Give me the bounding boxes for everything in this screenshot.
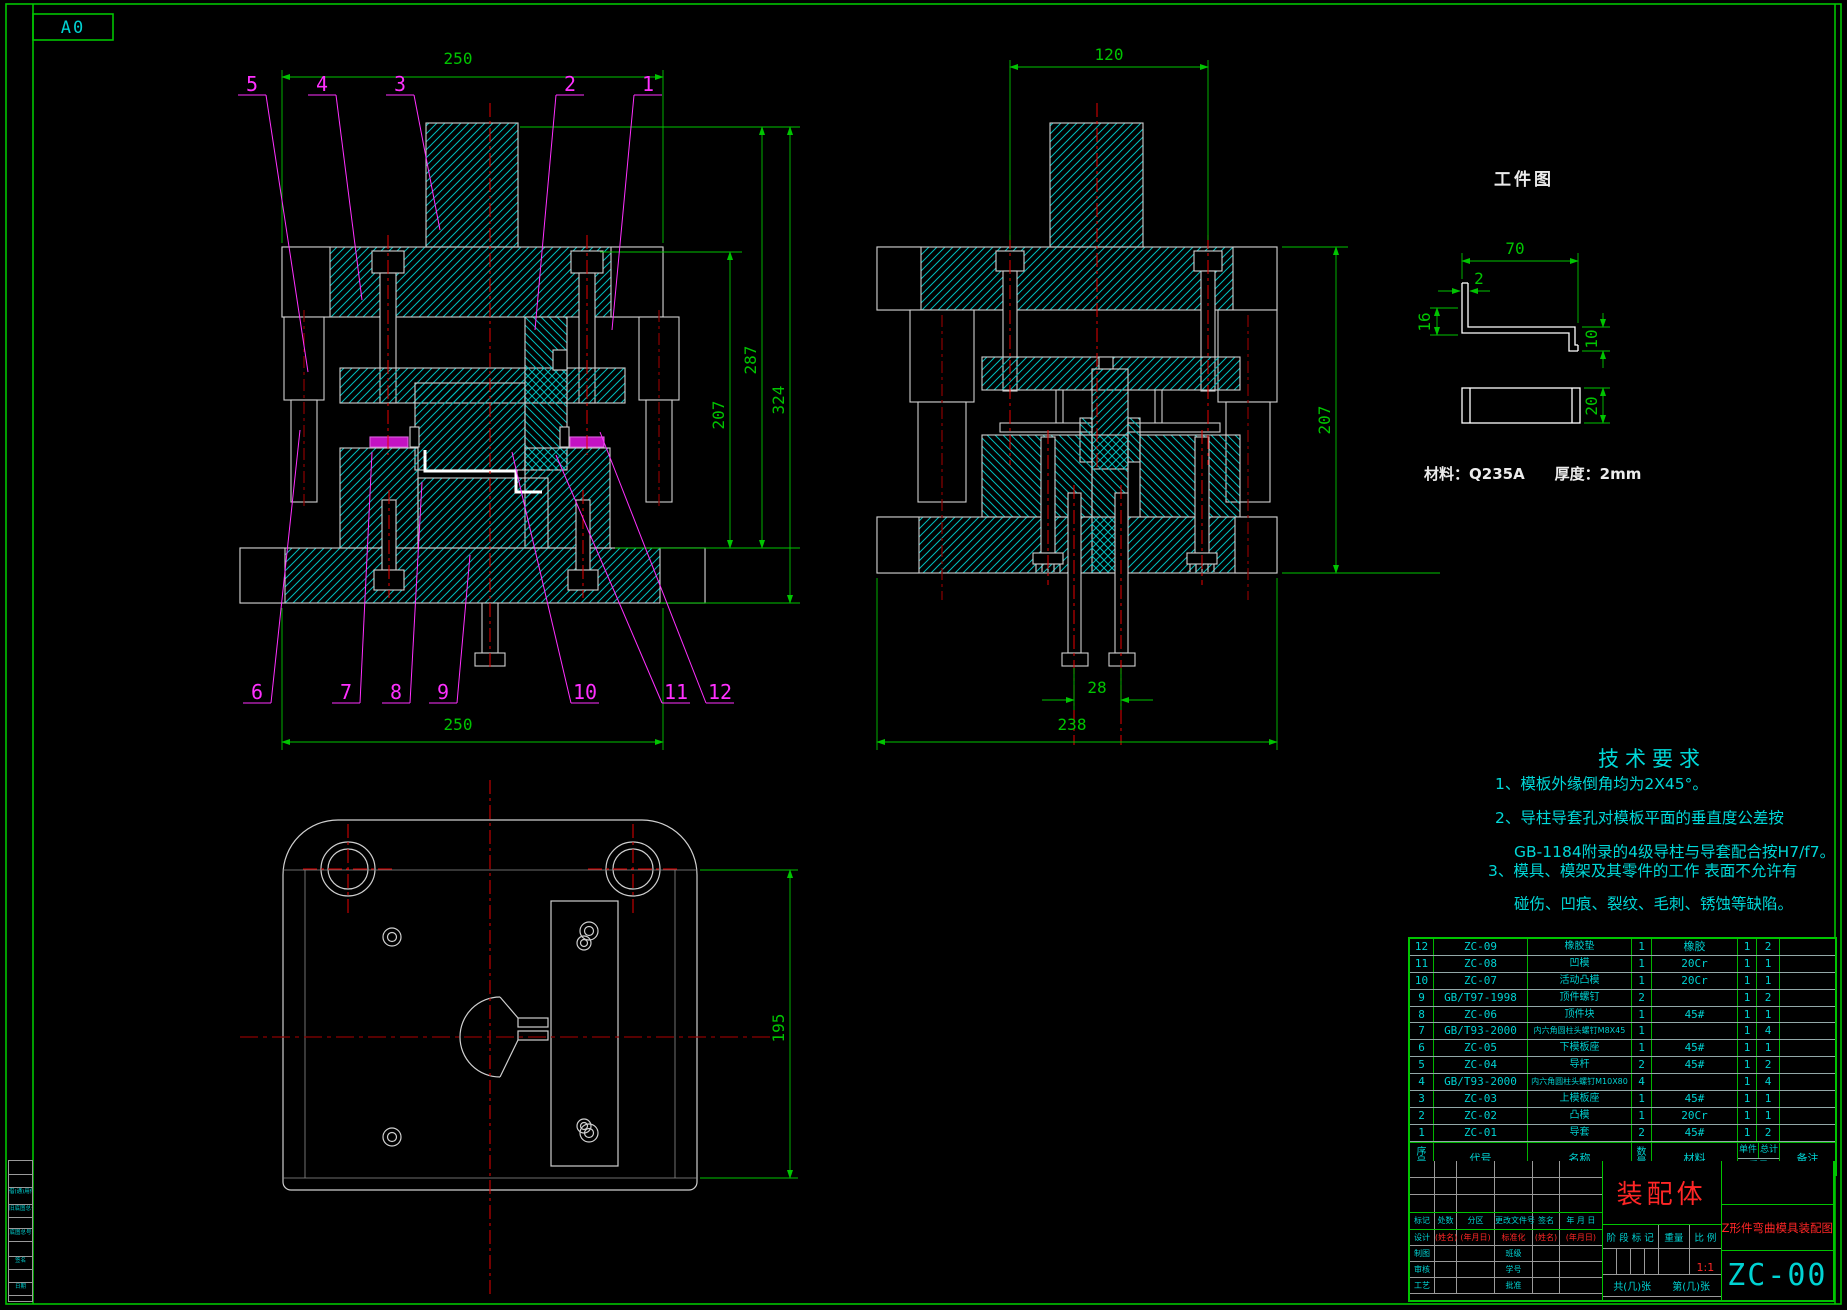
svg-text:9: 9 <box>437 680 449 704</box>
bom-cell-note <box>1780 1023 1835 1039</box>
strip-label: 旧底图总号 <box>8 1204 33 1217</box>
dim-side-top-width: 120 <box>1095 45 1124 64</box>
bom-cell-seq: 9 <box>1410 990 1434 1006</box>
tech-req-title: 技术要求 <box>1598 743 1706 773</box>
bom-cell-code: GB/T93-2000 <box>1434 1074 1528 1090</box>
bom-cell-total: 1 <box>1757 973 1780 989</box>
centerlines-plan <box>303 780 678 1296</box>
strip-label: 借(通)用件登记 <box>8 1187 33 1204</box>
bom-cell-note <box>1780 1074 1835 1090</box>
bom-cell-code: ZC-04 <box>1434 1057 1528 1073</box>
left-margin-strip: 借(通)用件登记 旧底图总号 底图总号 签名 日期 <box>8 1160 33 1302</box>
bom-cell-code: ZC-05 <box>1434 1040 1528 1056</box>
title-block: 标记 处数 分区 更改文件号 签名 年 月 日 设计 (姓名) (年月日) 标准… <box>1408 1161 1835 1302</box>
dim-side-bottom-width: 238 <box>1058 715 1087 734</box>
sig-row-check: 审核 学号 <box>1410 1262 1602 1278</box>
bom-cell-total: 2 <box>1757 939 1780 955</box>
stage-cells: 1:1 <box>1603 1249 1721 1275</box>
bom-row: 4 GB/T93-2000 内六角圆柱头螺钉M10X80 4 1 4 <box>1410 1074 1835 1091</box>
bom-cell-note <box>1780 1007 1835 1023</box>
bom-cell-seq: 7 <box>1410 1023 1434 1039</box>
bom-cell-material: 20Cr <box>1652 956 1738 972</box>
bom-cell-name: 导套 <box>1528 1125 1632 1141</box>
bom-cell-unit: 1 <box>1738 1125 1757 1141</box>
workpiece-material-note: 材料：Q235A 厚度：2mm <box>1424 463 1641 484</box>
bom-cell-total: 4 <box>1757 1023 1780 1039</box>
bom-cell-material: 45# <box>1652 1007 1738 1023</box>
dim-front-height-outer: 324 <box>769 386 788 415</box>
dim-wp-thickness: 2 <box>1474 269 1484 288</box>
svg-text:3: 3 <box>394 72 406 96</box>
strip-label: 签名 <box>8 1256 33 1269</box>
bom-cell-unit: 1 <box>1738 1023 1757 1039</box>
bom-cell-material: 45# <box>1652 1040 1738 1056</box>
bom-cell-seq: 2 <box>1410 1108 1434 1124</box>
bom-cell-unit: 1 <box>1738 939 1757 955</box>
bom-cell-seq: 11 <box>1410 956 1434 972</box>
svg-text:11: 11 <box>664 680 688 704</box>
bom-row: 1 ZC-01 导套 2 45# 1 2 <box>1410 1125 1835 1142</box>
bom-cell-unit: 1 <box>1738 1108 1757 1124</box>
dim-side-bolt-spacing: 28 <box>1087 678 1106 697</box>
workpiece-detail: 70 2 16 10 20 <box>1415 239 1610 423</box>
side-view: 120 207 28 238 <box>877 45 1440 750</box>
bom-row: 7 GB/T93-2000 内六角圆柱头螺钉M8X45 1 1 4 <box>1410 1023 1835 1040</box>
front-view: 250 207 287 324 250 5 4 3 2 1 6 7 <box>238 49 800 750</box>
bom-cell-unit: 1 <box>1738 1091 1757 1107</box>
bom-cell-total: 1 <box>1757 1040 1780 1056</box>
bom-cell-seq: 8 <box>1410 1007 1434 1023</box>
bom-cell-qty: 1 <box>1632 1023 1652 1039</box>
plan-view: 195 <box>240 780 798 1296</box>
svg-text:12: 12 <box>708 680 732 704</box>
bom-cell-unit: 1 <box>1738 1057 1757 1073</box>
bom-cell-unit: 1 <box>1738 973 1757 989</box>
bom-cell-unit: 1 <box>1738 1074 1757 1090</box>
bom-header-total: 总计 <box>1759 1143 1779 1158</box>
sheets-row: 共(几)张 第(几)张 <box>1603 1275 1721 1297</box>
bom-cell-name: 橡胶垫 <box>1528 939 1632 955</box>
bom-cell-code: ZC-03 <box>1434 1091 1528 1107</box>
bom-cell-qty: 2 <box>1632 990 1652 1006</box>
bom-cell-code: ZC-01 <box>1434 1125 1528 1141</box>
bom-row: 12 ZC-09 橡胶垫 1 橡胶 1 2 <box>1410 939 1835 956</box>
bom-table: 12 ZC-09 橡胶垫 1 橡胶 1 2 11 ZC-08 凹模 1 20Cr… <box>1408 937 1837 1176</box>
bom-cell-qty: 1 <box>1632 1007 1652 1023</box>
bom-cell-name: 活动凸模 <box>1528 973 1632 989</box>
bom-row: 5 ZC-04 导杆 2 45# 1 2 <box>1410 1057 1835 1074</box>
bom-cell-total: 2 <box>1757 1057 1780 1073</box>
bom-cell-unit: 1 <box>1738 1007 1757 1023</box>
dim-front-bottom-width: 250 <box>444 715 473 734</box>
bom-cell-note <box>1780 956 1835 972</box>
bom-cell-seq: 10 <box>1410 973 1434 989</box>
sig-row-draft: 制图 班级 <box>1410 1246 1602 1262</box>
bom-cell-name: 凸模 <box>1528 1108 1632 1124</box>
bom-row: 11 ZC-08 凹模 1 20Cr 1 1 <box>1410 956 1835 973</box>
bom-cell-material: 45# <box>1652 1091 1738 1107</box>
bom-cell-seq: 12 <box>1410 939 1434 955</box>
bom-cell-note <box>1780 939 1835 955</box>
svg-text:10: 10 <box>573 680 597 704</box>
bom-cell-total: 2 <box>1757 1125 1780 1141</box>
bom-cell-material: 橡胶 <box>1652 939 1738 955</box>
bom-cell-code: GB/T97-1998 <box>1434 990 1528 1006</box>
bom-header-unit: 单件 <box>1738 1143 1759 1158</box>
dim-wp-flange-left: 16 <box>1415 312 1434 331</box>
dim-wp-flange-right: 10 <box>1582 329 1601 348</box>
bom-cell-qty: 1 <box>1632 1040 1652 1056</box>
svg-text:8: 8 <box>390 680 402 704</box>
bom-cell-note <box>1780 973 1835 989</box>
cad-sheet: A0 <box>0 0 1847 1310</box>
bom-cell-note <box>1780 990 1835 1006</box>
bom-cell-material: 20Cr <box>1652 1108 1738 1124</box>
bom-cell-unit: 1 <box>1738 956 1757 972</box>
bom-row: 2 ZC-02 凸模 1 20Cr 1 1 <box>1410 1108 1835 1125</box>
bom-cell-code: ZC-08 <box>1434 956 1528 972</box>
bom-cell-total: 1 <box>1757 1091 1780 1107</box>
strip-label: 日期 <box>8 1282 33 1295</box>
bom-cell-material <box>1652 1023 1738 1039</box>
sheet-size-label: A0 <box>61 18 85 38</box>
bom-cell-name: 内六角圆柱头螺钉M8X45 <box>1528 1023 1632 1039</box>
dim-wp-blank-height: 20 <box>1582 396 1601 415</box>
bom-cell-unit: 1 <box>1738 990 1757 1006</box>
dim-front-height-mid: 287 <box>741 346 760 375</box>
title-block-right: Z形件弯曲模具装配图 ZC-00 <box>1722 1161 1833 1300</box>
drawing-number: ZC-00 <box>1722 1251 1833 1300</box>
bom-cell-seq: 3 <box>1410 1091 1434 1107</box>
bom-cell-material: 45# <box>1652 1057 1738 1073</box>
bom-cell-total: 2 <box>1757 990 1780 1006</box>
bom-cell-code: ZC-07 <box>1434 973 1528 989</box>
bom-cell-material: 45# <box>1652 1125 1738 1141</box>
bom-cell-qty: 2 <box>1632 1125 1652 1141</box>
dim-plan-height: 195 <box>769 1014 788 1043</box>
dim-wp-width: 70 <box>1505 239 1524 258</box>
bom-row: 3 ZC-03 上模板座 1 45# 1 1 <box>1410 1091 1835 1108</box>
bom-cell-note <box>1780 1040 1835 1056</box>
bom-row: 8 ZC-06 顶件块 1 45# 1 1 <box>1410 1007 1835 1024</box>
bom-cell-qty: 1 <box>1632 956 1652 972</box>
stage-row: 阶 段 标 记 重量 比 例 <box>1603 1225 1721 1249</box>
svg-text:2: 2 <box>564 72 576 96</box>
tech-req-line: 碰伤、凹痕、裂纹、毛刺、锈蚀等缺陷。 <box>1514 892 1793 914</box>
bom-cell-qty: 4 <box>1632 1074 1652 1090</box>
bom-cell-note <box>1780 1125 1835 1141</box>
bom-cell-seq: 5 <box>1410 1057 1434 1073</box>
bom-cell-name: 凹模 <box>1528 956 1632 972</box>
bom-cell-name: 顶件螺钉 <box>1528 990 1632 1006</box>
tech-req-line: 2、导柱导套孔对模板平面的垂直度公差按 <box>1495 806 1784 828</box>
bom-cell-seq: 6 <box>1410 1040 1434 1056</box>
bom-cell-seq: 4 <box>1410 1074 1434 1090</box>
svg-text:5: 5 <box>246 72 258 96</box>
bom-cell-name: 顶件块 <box>1528 1007 1632 1023</box>
bom-cell-total: 4 <box>1757 1074 1780 1090</box>
sig-row-design: 设计 (姓名) (年月日) 标准化 (姓名) (年月日) <box>1410 1230 1602 1246</box>
bom-cell-qty: 1 <box>1632 973 1652 989</box>
bom-cell-seq: 1 <box>1410 1125 1434 1141</box>
tech-req-line: 3、模具、模架及其零件的工作 表面不允许有 <box>1488 859 1797 881</box>
bom-cell-name: 内六角圆柱头螺钉M10X80 <box>1528 1074 1632 1090</box>
bom-cell-qty: 1 <box>1632 1108 1652 1124</box>
svg-text:1: 1 <box>642 72 654 96</box>
strip-label: 底图总号 <box>8 1228 33 1241</box>
bom-cell-code: ZC-02 <box>1434 1108 1528 1124</box>
scale-value: 1:1 <box>1690 1249 1720 1274</box>
bom-cell-unit: 1 <box>1738 1040 1757 1056</box>
bom-cell-code: GB/T93-2000 <box>1434 1023 1528 1039</box>
dim-front-top-width: 250 <box>444 49 473 68</box>
bom-cell-name: 上模板座 <box>1528 1091 1632 1107</box>
drawing-name: Z形件弯曲模具装配图 <box>1722 1205 1833 1251</box>
revision-header-row: 标记 处数 分区 更改文件号 签名 年 月 日 <box>1410 1213 1602 1230</box>
svg-text:6: 6 <box>251 680 263 704</box>
title-block-revision-area: 标记 处数 分区 更改文件号 签名 年 月 日 设计 (姓名) (年月日) 标准… <box>1410 1161 1603 1300</box>
bom-cell-total: 1 <box>1757 1108 1780 1124</box>
bom-cell-note <box>1780 1057 1835 1073</box>
bom-cell-material <box>1652 1074 1738 1090</box>
bom-cell-qty: 1 <box>1632 939 1652 955</box>
bom-cell-material <box>1652 990 1738 1006</box>
workpiece-title: 工件图 <box>1494 165 1554 190</box>
bom-cell-qty: 1 <box>1632 1091 1652 1107</box>
bom-cell-name: 下模板座 <box>1528 1040 1632 1056</box>
tech-req-line: 1、模板外缘倒角均为2X45°。 <box>1495 772 1708 794</box>
bom-cell-name: 导杆 <box>1528 1057 1632 1073</box>
title-block-middle: 装配体 阶 段 标 记 重量 比 例 1:1 共(几)张 第(几)张 <box>1603 1161 1722 1300</box>
bom-cell-note <box>1780 1091 1835 1107</box>
dim-side-height: 207 <box>1315 406 1334 435</box>
bom-cell-total: 1 <box>1757 1007 1780 1023</box>
bom-cell-code: ZC-06 <box>1434 1007 1528 1023</box>
bom-row: 9 GB/T97-1998 顶件螺钉 2 1 2 <box>1410 990 1835 1007</box>
bom-cell-qty: 2 <box>1632 1057 1652 1073</box>
svg-text:4: 4 <box>316 72 328 96</box>
bom-row: 10 ZC-07 活动凸模 1 20Cr 1 1 <box>1410 973 1835 990</box>
bom-row: 6 ZC-05 下模板座 1 45# 1 1 <box>1410 1040 1835 1057</box>
dim-front-height-inner: 207 <box>709 401 728 430</box>
assembly-name: 装配体 <box>1603 1161 1721 1225</box>
svg-text:7: 7 <box>340 680 352 704</box>
bom-rows: 12 ZC-09 橡胶垫 1 橡胶 1 2 11 ZC-08 凹模 1 20Cr… <box>1410 939 1835 1142</box>
bom-cell-note <box>1780 1108 1835 1124</box>
bom-cell-total: 1 <box>1757 956 1780 972</box>
bom-cell-material: 20Cr <box>1652 973 1738 989</box>
bom-cell-code: ZC-09 <box>1434 939 1528 955</box>
sig-row-process: 工艺 批准 <box>1410 1278 1602 1294</box>
